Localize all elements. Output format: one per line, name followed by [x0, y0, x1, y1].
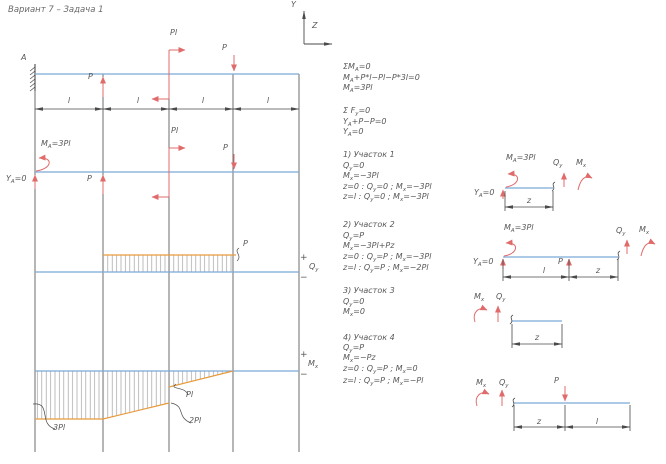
dim-l-4: l: [260, 97, 276, 106]
shear-diagram: [103, 248, 239, 272]
fbd1-dim-z: z: [523, 197, 535, 206]
axis-y-label: Y: [291, 1, 296, 10]
moment-plus-sign: +: [300, 351, 308, 361]
section2-z0: z=0 : Qy=P ; Mx=−3Pl: [343, 253, 431, 262]
moment-minus-sign: −: [300, 371, 308, 381]
section1-z0: z=0 : Qy=0 ; Mx=−3Pl: [343, 183, 432, 192]
section2-m: Mx=−3Pl+Pz: [343, 242, 394, 251]
section4-m: Mx=−Pz: [343, 354, 376, 363]
fbd1-graphics: [503, 173, 592, 199]
reaction-force-label: YA=0: [6, 175, 26, 184]
sheet-title: Вариант 7 – Задача 1: [8, 6, 104, 15]
section4-z0: z=0 : Qy=P ; Mx=0: [343, 365, 418, 374]
fbd4-mx-label: Mx: [476, 379, 486, 388]
moment-diagram: [33, 371, 233, 429]
fbd3-graphics: [474, 306, 498, 322]
beam2-force-p-up-label: P: [87, 175, 92, 184]
moment-axis-label: Mx: [308, 360, 318, 369]
fbd3-dimension: [510, 315, 562, 348]
drawing-canvas: [0, 0, 666, 464]
beam1-force-p-down-label: P: [222, 44, 227, 53]
section3-q: Qy=0: [343, 298, 364, 307]
moment-pl-label: Pl: [186, 391, 193, 400]
eq-force-result: YA=0: [343, 128, 363, 137]
shear-peak-label: P: [243, 240, 248, 249]
fbd2-qy-label: Qy: [616, 227, 626, 236]
fbd2-graphics: [503, 240, 655, 269]
section4-title: 4) Участок 4: [343, 334, 395, 343]
fixed-support-hatching: [30, 64, 35, 91]
fbd1-mx-label: Mx: [576, 159, 586, 168]
shear-plus-sign: +: [300, 254, 308, 264]
beam1-moment-pl-label: Pl: [170, 29, 177, 38]
beam2-moment-pl-label: Pl: [171, 127, 178, 136]
fbd4-p-label: P: [554, 377, 559, 386]
eq-sum-forces: Σ Fy=0: [343, 107, 370, 116]
fbd2-ma-label: MA=3Pl: [504, 224, 534, 233]
axis-z-label: Z: [312, 22, 317, 31]
section2-zl: z=l : Qy=P ; Mx=−2Pl: [343, 264, 429, 273]
beam1-force-p-up-label: P: [88, 73, 93, 82]
fbd4-qy-label: Qy: [499, 379, 509, 388]
eq-moment-expanded: MA+P*l−Pl−P*3l=0: [343, 74, 420, 83]
coordinate-axes: [304, 11, 332, 44]
section2-q: Qy=P: [343, 232, 364, 241]
eq-sum-moments: ΣMA=0: [343, 63, 371, 72]
section4-zl: z=l : Qy=P ; Mx=−Pl: [343, 377, 423, 386]
beam2-force-p-down-label: P: [223, 144, 228, 153]
reaction-moment-label: MA=3Pl: [41, 140, 71, 149]
fbd2-dim-l: l: [538, 267, 550, 276]
section1-m: Mx=−3Pl: [343, 172, 379, 181]
section3-m: Mx=0: [343, 308, 365, 317]
beam-lines: [35, 74, 630, 403]
fbd2-ya-label: YA=0: [473, 258, 493, 267]
dim-l-3: l: [195, 97, 211, 106]
fbd3-dim-z: z: [531, 334, 543, 343]
section1-q: Qy=0: [343, 162, 364, 171]
fbd1-ma-label: MA=3Pl: [506, 154, 536, 163]
support-a-label: A: [21, 54, 26, 63]
fbd1-ya-label: YA=0: [474, 189, 494, 198]
moment-2pl-label: 2Pl: [189, 417, 201, 426]
shear-axis-label: Qy: [309, 263, 319, 272]
fbd4-dim-z: z: [533, 418, 545, 427]
fbd2-dim-z: z: [592, 267, 604, 276]
shear-minus-sign: −: [300, 274, 308, 284]
moment-3pl-label: 3Pl: [53, 424, 65, 433]
fbd4-dim-l: l: [591, 418, 603, 427]
eq-force-expanded: YA+P−P=0: [343, 118, 387, 127]
dim-l-2: l: [130, 97, 146, 106]
eq-moment-result: MA=3Pl: [343, 84, 373, 93]
dim-l-1: l: [61, 97, 77, 106]
section1-title: 1) Участок 1: [343, 151, 395, 160]
fbd1-qy-label: Qy: [553, 159, 563, 168]
fbd2-mx-label: Mx: [639, 226, 649, 235]
section1-zl: z=l : Qy=0 ; Mx=−3Pl: [343, 193, 429, 202]
section2-title: 2) Участок 2: [343, 221, 395, 230]
section4-q: Qy=P: [343, 344, 364, 353]
fbd3-mx-label: Mx: [474, 293, 484, 302]
section3-title: 3) Участок 3: [343, 287, 395, 296]
fbd3-qy-label: Qy: [496, 293, 506, 302]
drafting-sheet: Вариант 7 – Задача 1 Y Z A P Pl P l l l …: [0, 0, 666, 464]
fbd2-p-label: P: [558, 258, 563, 267]
